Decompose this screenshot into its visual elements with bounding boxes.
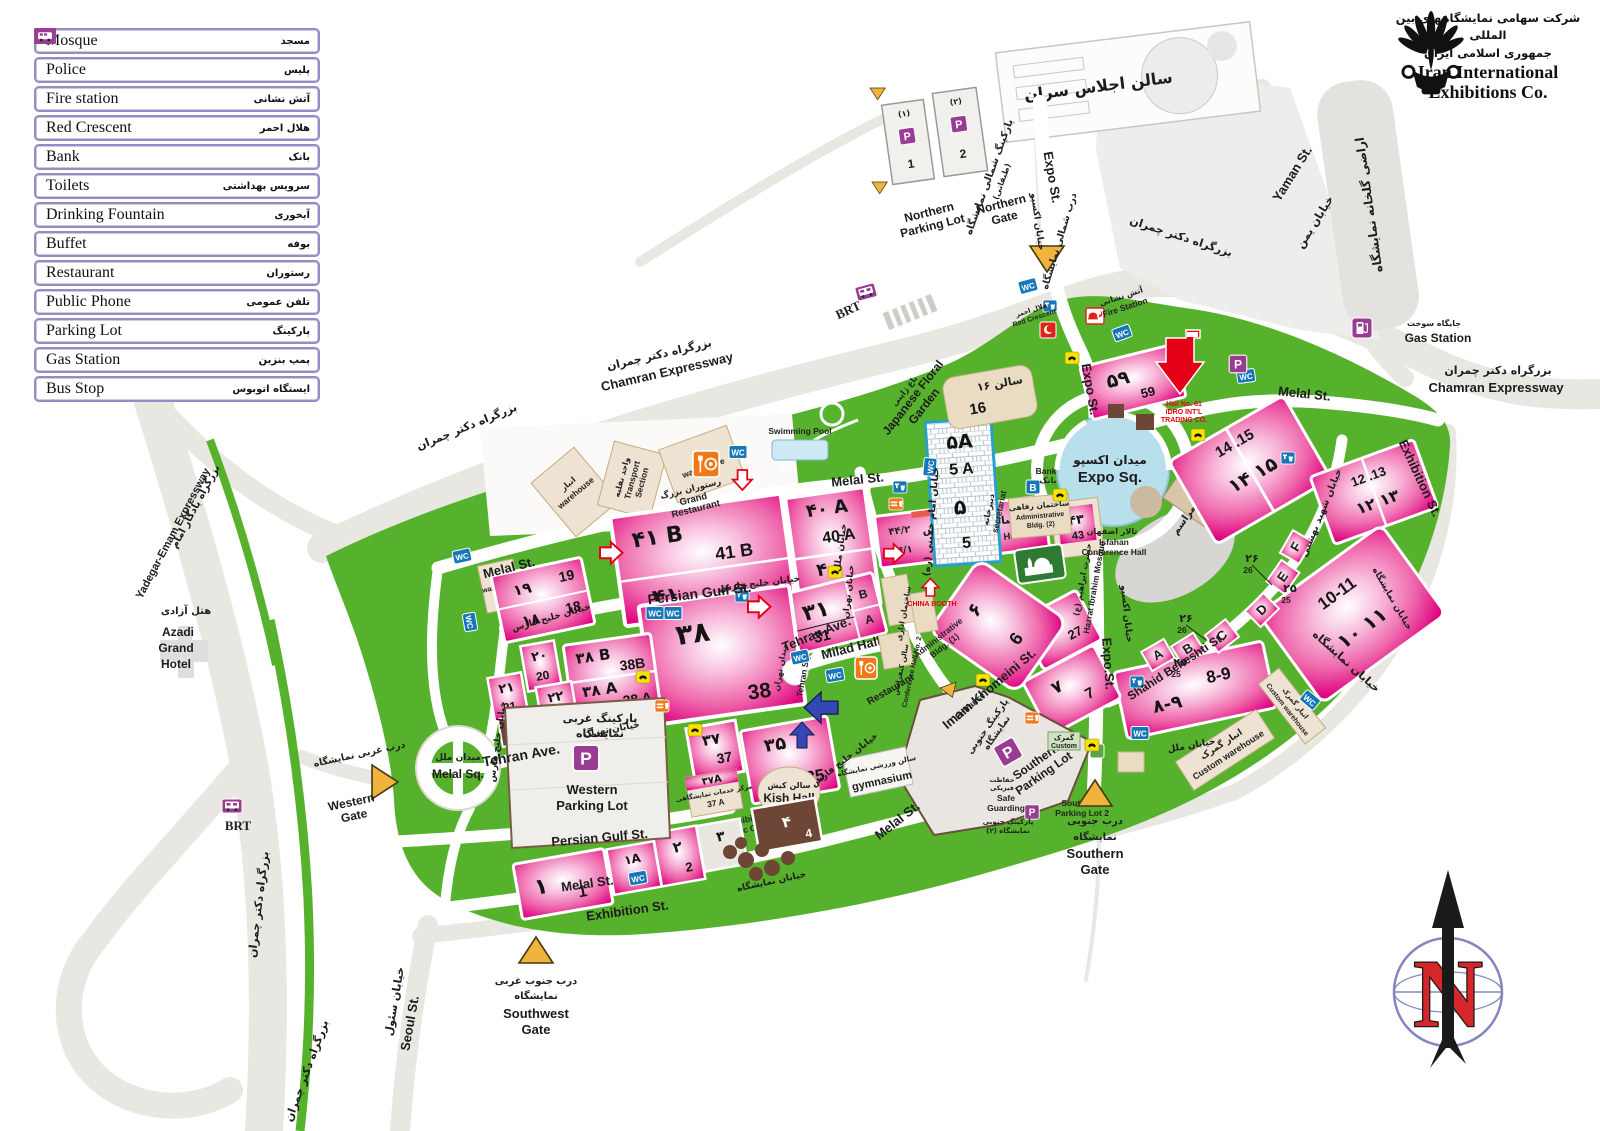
svg-text:فیزیکی: فیزیکی [990,784,1014,792]
legend-label-fa: آتش نشانی [222,94,314,105]
svg-text:43: 43 [1071,529,1085,542]
legend-label-en: Bank [40,148,192,166]
svg-text:26: 26 [1177,625,1187,635]
grand-restaurant-icon [693,451,719,477]
legend-label-en: Drinking Fountain [40,206,192,224]
svg-text:درب جنوبی: درب جنوبی [1067,816,1123,827]
parking-icon [950,115,968,133]
svg-text:38: 38 [746,679,773,705]
svg-text:37: 37 [715,748,733,766]
legend-label-fa: پلیس [222,65,314,76]
public-phone-icon [1065,352,1079,364]
svg-text:۲۱: ۲۱ [497,680,515,698]
svg-text:Western: Western [566,782,617,797]
svg-text:Southern: Southern [1066,846,1123,861]
buffet-icon [889,498,903,510]
gas-station-label-en: Gas Station [1405,331,1472,345]
legend-item-red-crescent: Red Crescent هلال احمر [34,115,320,141]
svg-text:TRADING CO.: TRADING CO. [1161,417,1207,424]
expo-square-label-en: Expo Sq. [1078,469,1142,486]
svg-text:Azadi: Azadi [162,625,194,639]
svg-text:Safe: Safe [997,793,1015,803]
legend-label-fa: بوفه [222,239,314,250]
legend-label-en: Gas Station [40,351,192,369]
legend-label-en: Public Phone [40,293,192,311]
legend-label-fa: مسجد [222,36,314,47]
svg-text:میدان ملل: میدان ملل [435,753,481,763]
svg-text:Custom: Custom [1051,743,1077,750]
svg-text:5: 5 [962,535,972,553]
svg-text:Grand: Grand [158,641,193,655]
buffet-icon [655,700,669,712]
brt-station-icon [222,799,242,813]
legend-label-en: Mosque [40,32,192,50]
legend-label-fa: ایستگاه اتوبوس [222,384,314,395]
svg-text:26: 26 [1243,565,1253,575]
legend-item-gas-station: Gas Station پمپ بنزین [34,347,320,373]
legend-item-drinking-fountain: Drinking Fountain آبخوری [34,202,320,228]
legend-item-mosque: Mosque مسجد [34,28,320,54]
svg-text:نمایشگاه: نمایشگاه [1073,830,1117,843]
svg-text:16: 16 [968,399,987,419]
swimming-pool [772,440,828,460]
svg-text:سالن کیش: سالن کیش [767,781,810,791]
legend-item-parking-lot: Parking Lot P پارکینگ [34,318,320,344]
legend-label-fa: تلفن عمومی [222,297,314,308]
wc-icon [1131,727,1149,740]
legend-label-fa: سرویس بهداشتی [222,181,314,192]
svg-text:بزرگراه دکتر چمران: بزرگراه دکتر چمران [1444,364,1551,377]
public-phone-icon [1053,489,1067,501]
parking-icon [1229,355,1247,373]
restaurant-icon [855,657,877,679]
wc-icon [462,612,478,632]
public-phone-icon [1191,429,1205,441]
svg-text:نمایشگاه (۲): نمایشگاه (۲) [986,826,1030,835]
bank-icon [1026,480,1040,494]
swimming-pool-label: Swimming Pool [768,426,831,436]
western-gate-label-en: Western Gate [327,790,379,827]
hall-1a: ۱A 1A [606,841,661,895]
red-crescent-icon [1040,322,1056,338]
svg-text:IDRO INT'L: IDRO INT'L [1166,409,1203,416]
legend-label-en: Fire station [40,90,192,108]
buffet-icon [1025,712,1039,724]
hut [1136,414,1154,430]
bank-label-en: Bank [1036,466,1057,476]
svg-text:Hotel: Hotel [161,657,191,671]
bus-stop-icon [34,28,56,44]
svg-text:نمایشگاه: نمایشگاه [514,989,558,1002]
gas-station-icon [1352,318,1372,338]
legend-label-fa: پارکینگ [222,326,314,337]
svg-text:Guarding: Guarding [987,803,1025,813]
svg-text:Southwest: Southwest [503,1006,569,1021]
public-phone-icon [1085,739,1099,751]
pedestrian-crossing [883,294,938,330]
gas-station-label-fa: جایگاه سوخت [1407,318,1461,328]
svg-text:Gate: Gate [1081,862,1110,877]
gate-marker-icon [870,88,885,100]
parking-icon [573,745,599,771]
svg-text:25: 25 [1281,595,1291,605]
company-logo-block: شرکت سهامی نمایشگاههای بین المللی جمهوری… [1388,10,1588,103]
legend-label-en: Toilets [40,177,192,195]
legend-item-police: Police پلیس [34,57,320,83]
mosque-building [1014,544,1066,584]
parking-tower-2-fa: (۲) [949,96,962,107]
southwest-gate-icon [519,937,553,963]
legend-item-buffet: Buffet بوفه [34,231,320,257]
gate-marker-icon [872,182,887,194]
legend-label-en: Parking Lot [40,322,192,340]
public-phone-icon [636,671,650,683]
svg-text:۲۶: ۲۶ [1179,612,1192,625]
legend-item-bank: Bank B بانک [34,144,320,170]
parking-tower-1-fa: (۱) [897,108,910,119]
svg-text:حفاظت: حفاظت [990,776,1015,784]
wc-icon [646,607,664,620]
svg-text:۳۵: ۳۵ [762,733,787,757]
svg-text:۳۷: ۳۷ [701,729,722,750]
map-canvas: WC P B اراضی گلخانه نمایشگاه سالن اجلاس … [0,0,1600,1131]
legend-label-en: Red Crescent [40,119,192,137]
svg-text:هتل آزادی: هتل آزادی [161,604,211,617]
svg-text:۲۵: ۲۵ [1283,582,1297,595]
svg-text:۳۸: ۳۸ [673,615,711,652]
legend-label-en: Buffet [40,235,192,253]
public-phone-icon [688,724,702,736]
drinking-fountain-icon [893,481,907,493]
legend-label-fa: بانک [222,152,314,163]
wc-icon [729,446,747,459]
svg-text:Hall No. 61: Hall No. 61 [1166,401,1202,408]
legend-item-public-phone: Public Phone تلفن عمومی [34,289,320,315]
legend-label-fa: رستوران [222,268,314,279]
legend-label-en: Police [40,61,192,79]
drinking-fountain-icon [1281,452,1295,464]
svg-text:۵: ۵ [953,495,968,520]
svg-text:۵A: ۵A [946,430,974,454]
expo-square-label-fa: میدان اکسپو [1072,453,1147,468]
china-booth-label: CHINA BOOTH [907,601,956,608]
hut [1108,404,1124,418]
bank-label-fa: بانک [1039,476,1056,485]
azadi-hotel: هتل آزادی Azadi Grand Hotel [158,604,211,678]
wc-icon [1018,277,1039,294]
svg-text:Parking Lot: Parking Lot [556,798,628,813]
legend-label-en: Restaurant [40,264,192,282]
legend-item-restaurant: Restaurant رستوران [34,260,320,286]
legend-label-fa: هلال احمر [222,123,314,134]
legend-label-en: Bus Stop [40,380,192,398]
svg-text:Chamran Expressway: Chamran Expressway [1428,380,1564,395]
svg-text:۱۹: ۱۹ [511,578,533,599]
brt-label: BRT [225,818,252,833]
legend-item-bus-stop: Bus Stop ایستگاه اتوبوس [34,376,320,402]
svg-text:20: 20 [535,668,551,684]
brt-station-icon [855,283,878,302]
svg-text:Gate: Gate [522,1022,551,1037]
legend-item-fire-station: Fire station آتش نشانی [34,86,320,112]
northern-parking-label: Northern Parking Lot [895,197,966,240]
iie-logo-icon [1388,10,1474,100]
legend-panel: Mosque مسجد Police پلیس Fire station آتش… [34,28,320,402]
compass-rose: N [1394,870,1502,1068]
svg-text:Melal Sq.: Melal Sq. [432,767,484,781]
legend-label-fa: پمپ بنزین [222,355,314,366]
legend-item-toilets: Toilets WC سرویس بهداشتی [34,173,320,199]
wc-icon [825,667,845,683]
wc-icon [664,607,682,620]
svg-text:۲۶: ۲۶ [1245,552,1258,565]
parking-icon [898,127,916,145]
svg-text:5 A: 5 A [949,460,975,479]
svg-text:گمرک: گمرک [1054,733,1075,742]
isfahan-hall-label-fa: تالار اصفهان [1087,527,1138,536]
wc-icon [628,870,648,886]
svg-text:درب جنوب غربی: درب جنوب غربی [495,976,577,987]
svg-text:پارکینگ جنوبی: پارکینگ جنوبی [983,817,1034,826]
svg-text:۲۰: ۲۰ [530,648,548,666]
svg-text:۱A: ۱A [623,851,642,868]
legend-label-fa: آبخوری [222,210,314,221]
